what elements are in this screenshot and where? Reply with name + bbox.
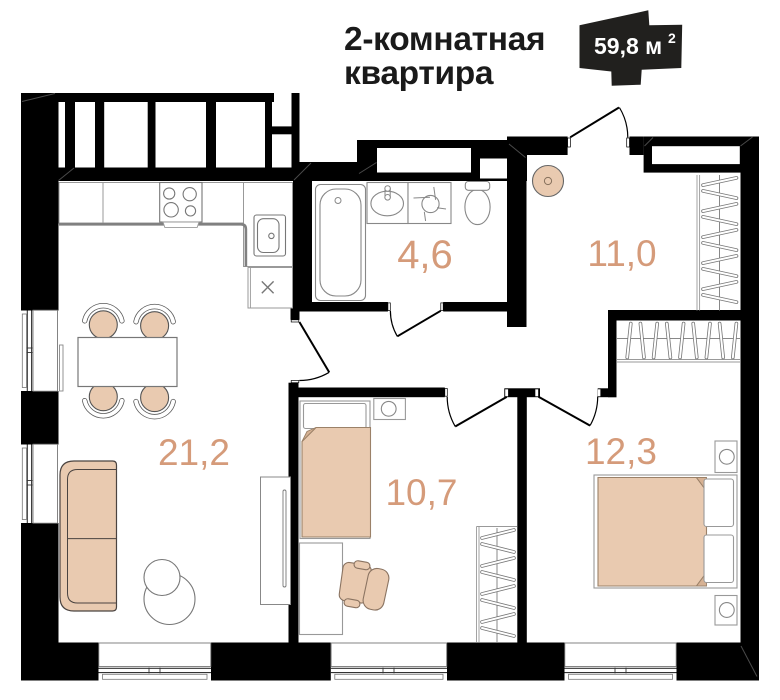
svg-text:квартира: квартира [344, 55, 494, 92]
svg-text:4,6: 4,6 [397, 233, 453, 277]
svg-text:10,7: 10,7 [385, 472, 457, 513]
svg-text:2: 2 [668, 30, 676, 46]
svg-text:59,8 м: 59,8 м [594, 33, 662, 59]
svg-text:11,0: 11,0 [587, 233, 656, 274]
svg-text:12,3: 12,3 [585, 431, 657, 472]
svg-text:2-комнатная: 2-комнатная [344, 21, 545, 58]
svg-text:21,2: 21,2 [158, 432, 230, 473]
